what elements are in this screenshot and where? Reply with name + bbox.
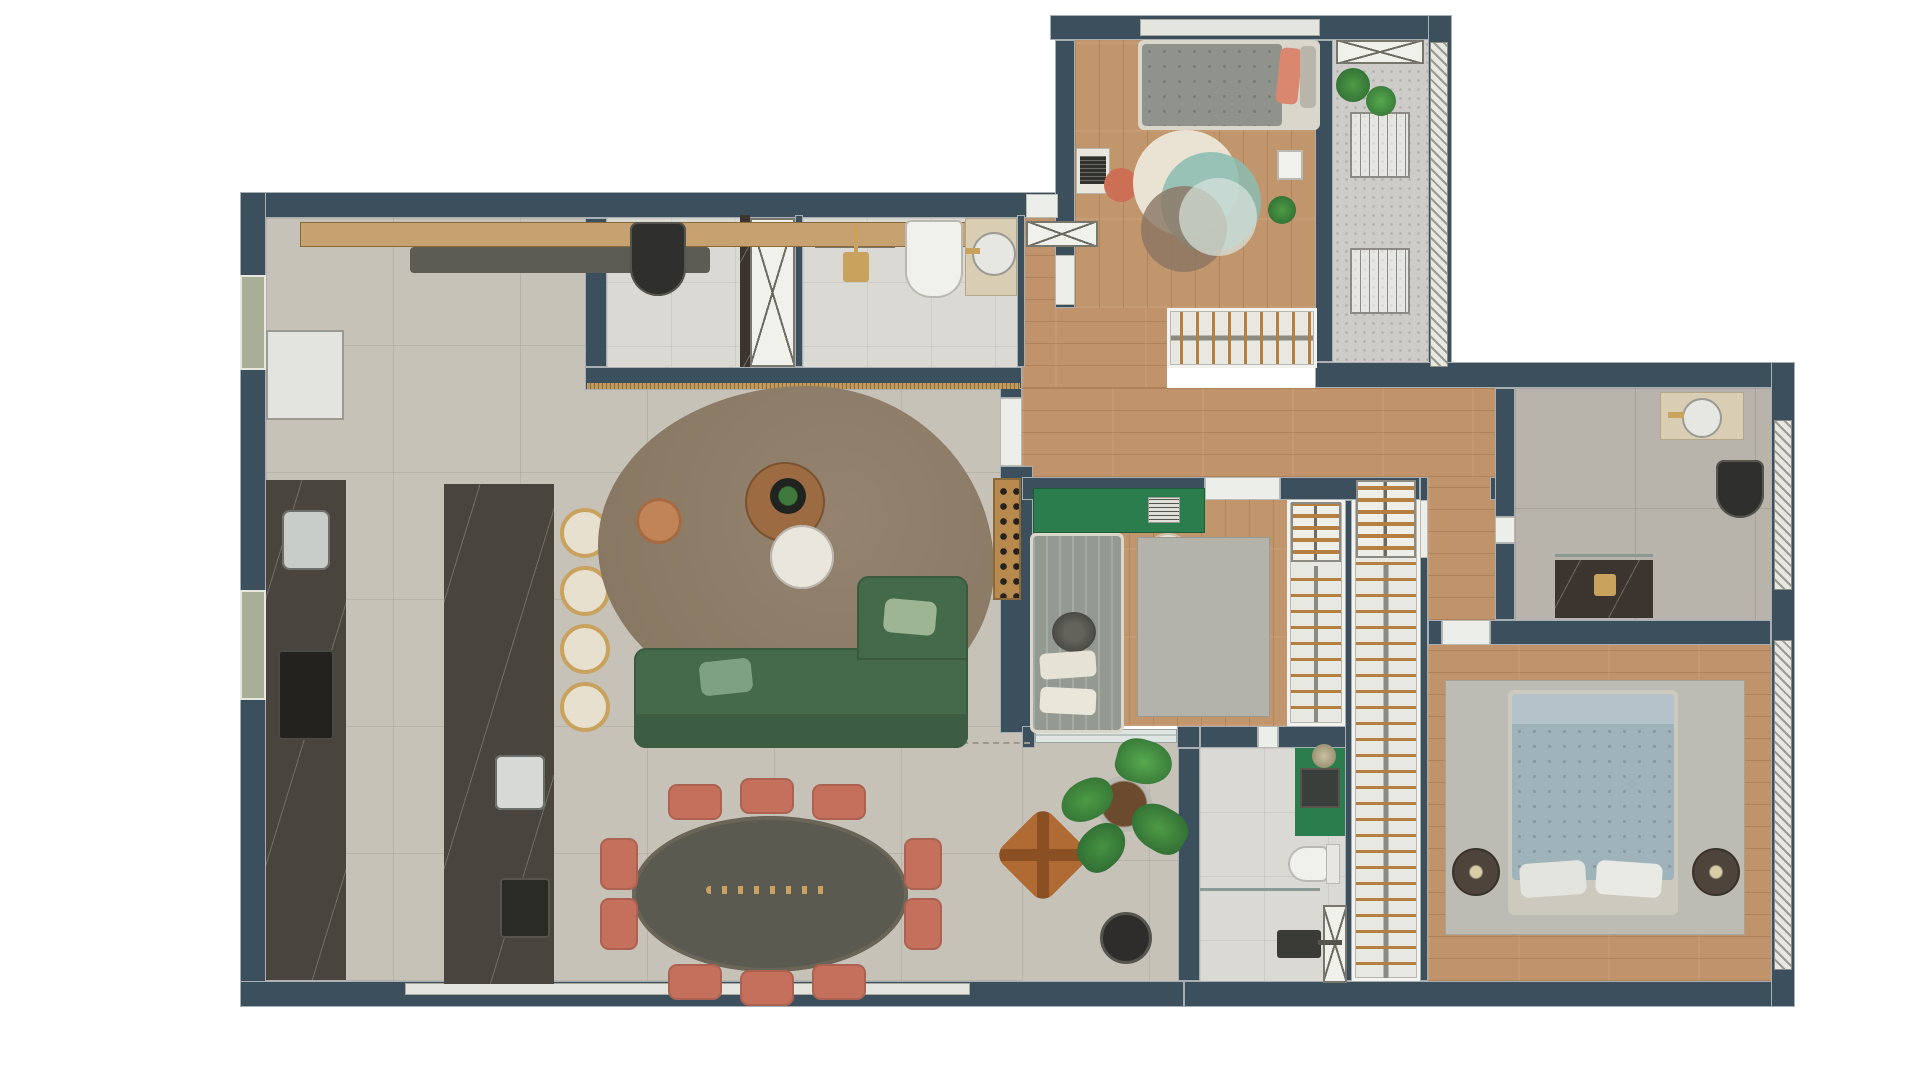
wall-master-bed-top-stub: [1428, 620, 1442, 645]
kitchen-sink: [282, 510, 330, 570]
bedroom2-door-opening: [1205, 477, 1280, 500]
master-bath-window: [1774, 420, 1792, 590]
fridge: [266, 330, 344, 420]
wall-corridor-top: [1315, 362, 1795, 388]
master-bath-faucet: [1668, 412, 1684, 418]
master-bathroom-door-opening: [1495, 517, 1515, 543]
suite-bathroom-door-opening: [1258, 726, 1278, 748]
wine-rack: [993, 478, 1021, 600]
suite-bath-sink: [1300, 768, 1340, 808]
master-nightstand-left: [1452, 848, 1500, 896]
floor-plan: [0, 0, 1920, 1080]
master-bath-toilet: [1716, 460, 1764, 518]
corridor-junction-floor: [1428, 477, 1495, 620]
dining-table: [632, 816, 908, 972]
cooktop: [278, 650, 334, 740]
entry-door-opening: [1026, 194, 1058, 218]
technical-plant-1: [1336, 68, 1370, 102]
hall-floor-under-bedroom: [1055, 305, 1167, 388]
master-bath-shower-fixture: [1594, 574, 1616, 596]
social-shower-head: [843, 252, 869, 282]
social-shower-stem: [854, 226, 858, 254]
bedroom1-laptop: [1080, 156, 1106, 184]
bedroom2-shoe-cabinet: [1291, 502, 1341, 562]
ac-condenser-unit-2: [1350, 248, 1410, 314]
bar-stool-3: [560, 624, 610, 674]
ac-condenser-unit-1: [1350, 112, 1410, 178]
dining-chair-4: [668, 964, 722, 1000]
bedroom2-knot-pillow: [1052, 612, 1096, 652]
suite-bath-plant: [1312, 744, 1336, 768]
master-pillow-1: [1519, 860, 1587, 899]
wall-master-bath-left-b: [1495, 543, 1515, 620]
suite-bath-toilet-tank: [1326, 844, 1340, 884]
dining-chair-5: [740, 970, 794, 1006]
wall-living-right-upper: [1000, 388, 1022, 398]
master-bed-fold: [1512, 694, 1674, 724]
coffee-table-white: [770, 525, 834, 589]
wall-suite-bath-top-b: [1278, 726, 1352, 748]
technical-louver-window: [1430, 42, 1448, 367]
suite-bath-shower-stem: [1318, 940, 1342, 945]
bedroom2-closet-hangers: [1291, 566, 1341, 722]
bedroom1-rug: [1133, 130, 1263, 278]
dining-table-runner: [706, 886, 834, 894]
bedroom1-wall-frame: [1277, 150, 1303, 180]
dining-chair-3: [812, 784, 866, 820]
social-vanity-faucet: [966, 248, 980, 254]
wall-master-bath-left-a: [1495, 388, 1515, 517]
rug-circle-pale: [1179, 178, 1257, 256]
wall-suite-bath-top-a: [1200, 726, 1258, 748]
dining-chair-6: [812, 964, 866, 1000]
technical-plant-2: [1366, 86, 1396, 116]
walkin-door-opening: [1420, 500, 1428, 558]
black-side-stool: [1100, 912, 1152, 964]
corridor-floor: [1022, 388, 1495, 477]
left-window-planter-upper: [240, 275, 266, 370]
bedroom1-window: [1140, 19, 1320, 36]
sofa-backrest: [634, 714, 968, 748]
bedroom1-mattress: [1142, 44, 1282, 126]
dining-chair-8: [600, 898, 638, 950]
master-pillow-2: [1595, 860, 1663, 899]
bedroom1-pillow-gray: [1300, 46, 1316, 108]
wall-master-bed-top: [1490, 620, 1771, 645]
bar-stool-4: [560, 682, 610, 732]
wall-bottom-right: [1184, 981, 1795, 1007]
suite-bath-toilet-bowl: [1288, 846, 1328, 882]
living-hall-opening: [1000, 398, 1022, 466]
dining-chair-2: [740, 778, 794, 814]
duct-shaft-technical: [1336, 40, 1424, 64]
left-window-planter-lower: [240, 590, 266, 700]
island-sink: [495, 755, 545, 810]
dining-chair-10: [904, 898, 942, 950]
master-bath-shower-glass: [1555, 554, 1653, 557]
wall-top: [240, 192, 1072, 218]
suite-bath-shower-glass: [1200, 888, 1320, 891]
bedroom1-plant: [1268, 196, 1296, 224]
master-bedroom-window: [1774, 640, 1792, 970]
dining-chair-7: [600, 838, 638, 890]
terracotta-side-stool: [636, 498, 682, 544]
large-plant: [1060, 740, 1190, 880]
social-vanity-sink: [972, 232, 1016, 276]
bedroom1-door-opening: [1055, 255, 1075, 305]
suite-bath-shower-fixture: [1277, 930, 1321, 958]
sofa-pillow-1: [698, 657, 753, 696]
bedroom2-pillow-2: [1039, 687, 1096, 716]
master-bath-sink: [1682, 398, 1722, 438]
walkin-hangers: [1356, 562, 1416, 978]
master-nightstand-right: [1692, 848, 1740, 896]
dining-chair-9: [904, 838, 942, 890]
island-oven: [500, 878, 550, 938]
lavabo-toilet: [630, 222, 686, 296]
bedroom2-rug: [1137, 537, 1270, 717]
social-toilet: [905, 220, 963, 298]
dining-chair-1: [668, 784, 722, 820]
sofa-pillow-2: [883, 598, 938, 636]
walkin-shoe-cabinet: [1356, 480, 1416, 558]
wall-bathroom2-right: [1017, 215, 1025, 367]
bedroom1-wardrobe: [1167, 308, 1317, 368]
master-bedroom-door-opening: [1442, 620, 1490, 645]
hall-upper-cabinet: [1026, 221, 1098, 247]
bedroom2-pillow-1: [1039, 650, 1097, 680]
coffee-table-vase-plant: [770, 478, 806, 514]
bedroom2-laptop: [1148, 497, 1180, 523]
